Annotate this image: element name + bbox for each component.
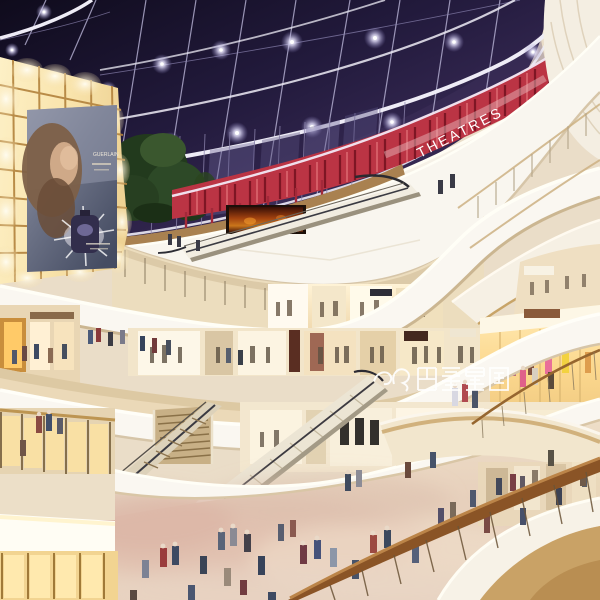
svg-text:GUERLAIN: GUERLAIN xyxy=(93,152,119,158)
